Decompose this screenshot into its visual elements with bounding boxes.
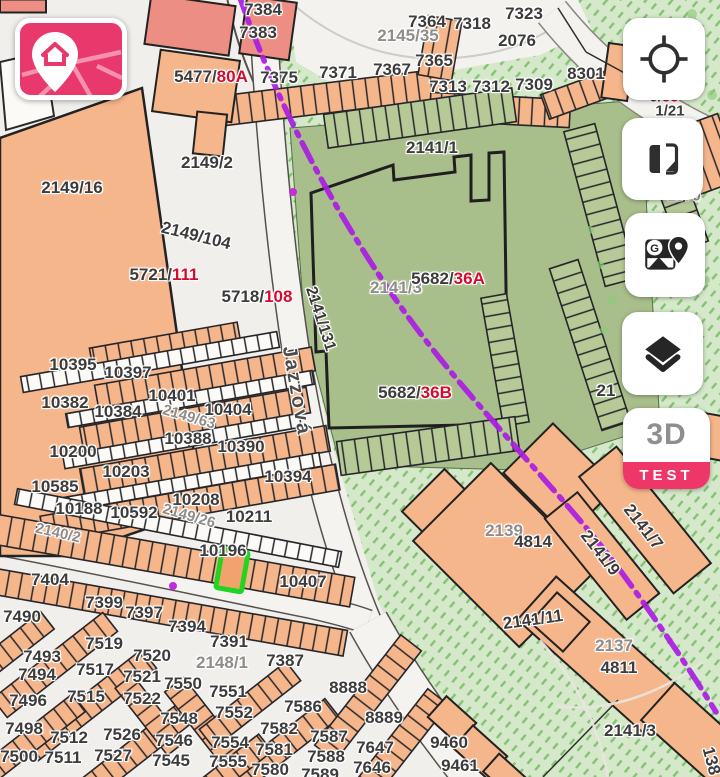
selected-parcel-highlight[interactable] [216,548,249,592]
layers-icon [638,329,688,379]
test-badge: TEST [623,462,710,489]
map-canvas[interactable] [0,0,720,777]
compare-maps-button[interactable] [622,118,703,200]
app-logo-button[interactable] [15,18,127,100]
3d-button[interactable]: 3D TEST [623,408,710,489]
google-maps-icon: G [640,230,690,280]
map-pin-house-icon [15,18,127,100]
flip-horizontal-icon [639,135,687,183]
map-view[interactable]: 738473832145/3573647318732320765477/80A7… [0,0,720,777]
layers-button[interactable] [622,312,703,395]
route-dot [289,188,297,196]
route-dot [169,582,177,590]
3d-label: 3D [623,408,710,462]
svg-text:G: G [650,243,659,255]
crosshair-icon [638,33,690,85]
google-maps-button[interactable]: G [625,213,705,297]
locate-button[interactable] [623,18,705,100]
